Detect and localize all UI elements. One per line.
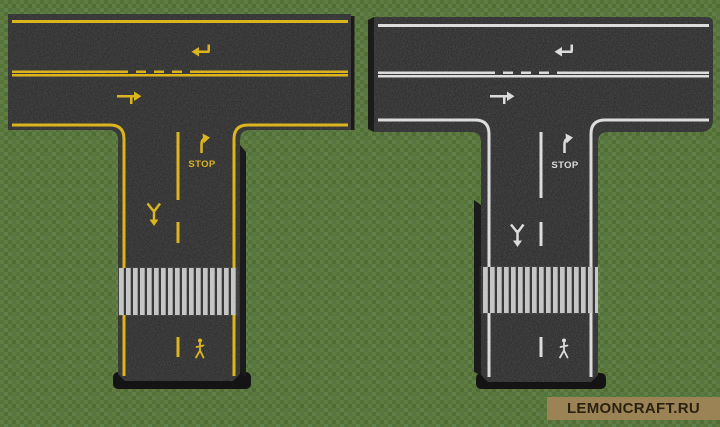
center-dash xyxy=(540,337,543,357)
screenshot-canvas: STOP xyxy=(0,0,720,427)
top-edge-line xyxy=(378,24,709,27)
stop-lane-line xyxy=(540,132,543,198)
stop-text: STOP xyxy=(551,160,579,171)
center-dash xyxy=(540,222,543,246)
center-dash xyxy=(177,337,180,357)
center-line-solid xyxy=(12,74,348,77)
stop-text: STOP xyxy=(188,159,216,170)
crosswalk xyxy=(482,267,598,313)
center-line-upper xyxy=(378,72,709,75)
watermark-banner: LEMONCRAFT.RU xyxy=(547,397,720,420)
top-edge-line xyxy=(12,20,348,23)
center-line-solid xyxy=(378,75,709,78)
crosswalk xyxy=(119,268,236,315)
center-dash xyxy=(177,222,180,243)
center-line-upper xyxy=(12,71,348,74)
watermark-text: LEMONCRAFT.RU xyxy=(567,400,700,417)
stop-lane-line xyxy=(177,132,180,200)
scene-svg: STOP xyxy=(0,0,720,427)
